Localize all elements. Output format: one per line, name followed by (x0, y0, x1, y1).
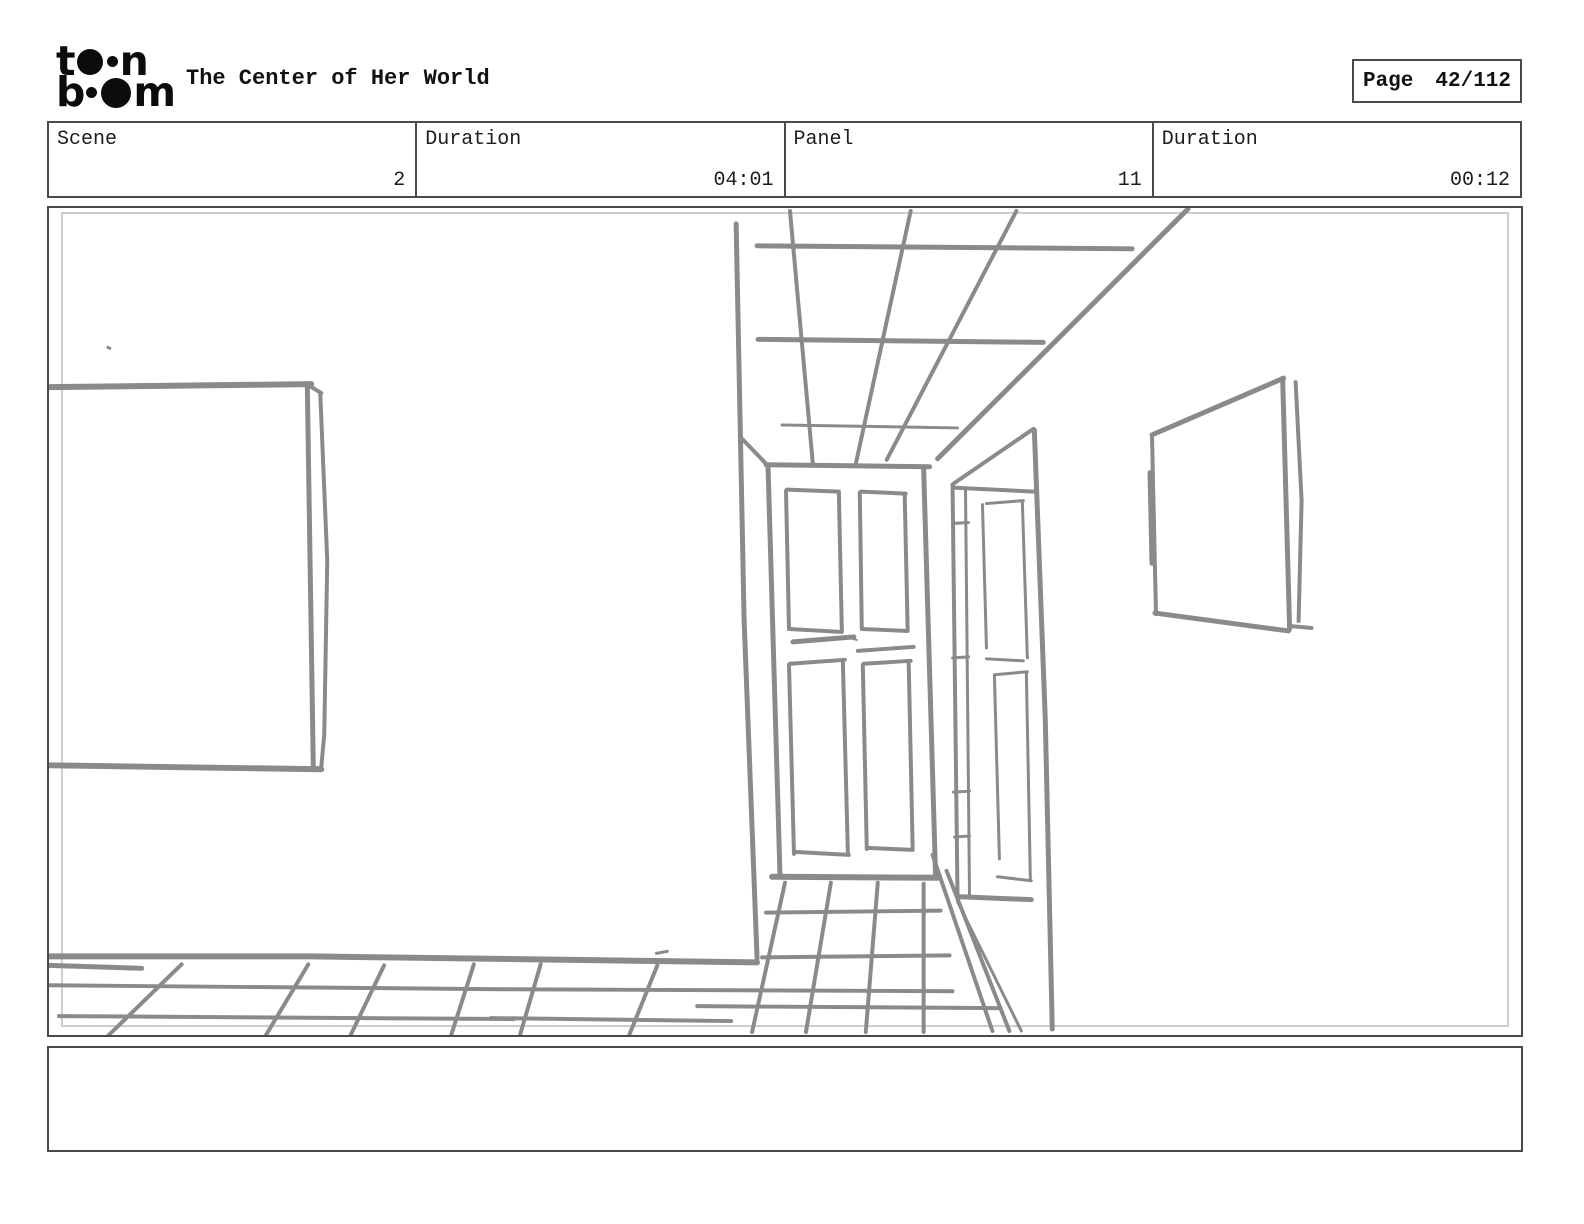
scene-label: Scene (57, 128, 117, 151)
panel-cell: Panel 11 (784, 123, 1152, 196)
logo-letter-m: m (133, 72, 175, 113)
scene-duration-label: Duration (425, 128, 521, 151)
panel-duration-value: 00:12 (1450, 169, 1510, 192)
sketch-svg (49, 208, 1521, 1035)
logo-dot-small-icon (107, 56, 118, 67)
project-title: The Center of Her World (186, 66, 490, 91)
page-label: Page (1363, 70, 1413, 93)
sketch-strokes (49, 209, 1312, 1035)
scene-cell: Scene 2 (49, 123, 415, 196)
scene-value: 2 (393, 169, 405, 192)
storyboard-page: t n b m The Center of Her World Page 42/… (0, 0, 1584, 1224)
logo-letter-b: b (56, 72, 84, 113)
info-table: Scene 2 Duration 04:01 Panel 11 Duration… (47, 121, 1522, 198)
page-number-box: Page 42/112 (1352, 59, 1522, 103)
scene-duration-cell: Duration 04:01 (415, 123, 783, 196)
panel-label: Panel (794, 128, 854, 151)
caption-box (47, 1046, 1523, 1152)
panel-duration-label: Duration (1162, 128, 1258, 151)
logo-row-2: b m (56, 75, 175, 110)
page-value: 42/112 (1435, 70, 1511, 93)
toonboom-logo: t n b m (56, 44, 175, 110)
scene-duration-value: 04:01 (713, 169, 773, 192)
storyboard-panel (47, 206, 1523, 1037)
logo-dot-large-icon (101, 78, 131, 108)
panel-duration-cell: Duration 00:12 (1152, 123, 1520, 196)
panel-value: 11 (1118, 169, 1142, 192)
logo-dot-small-icon (86, 87, 97, 98)
